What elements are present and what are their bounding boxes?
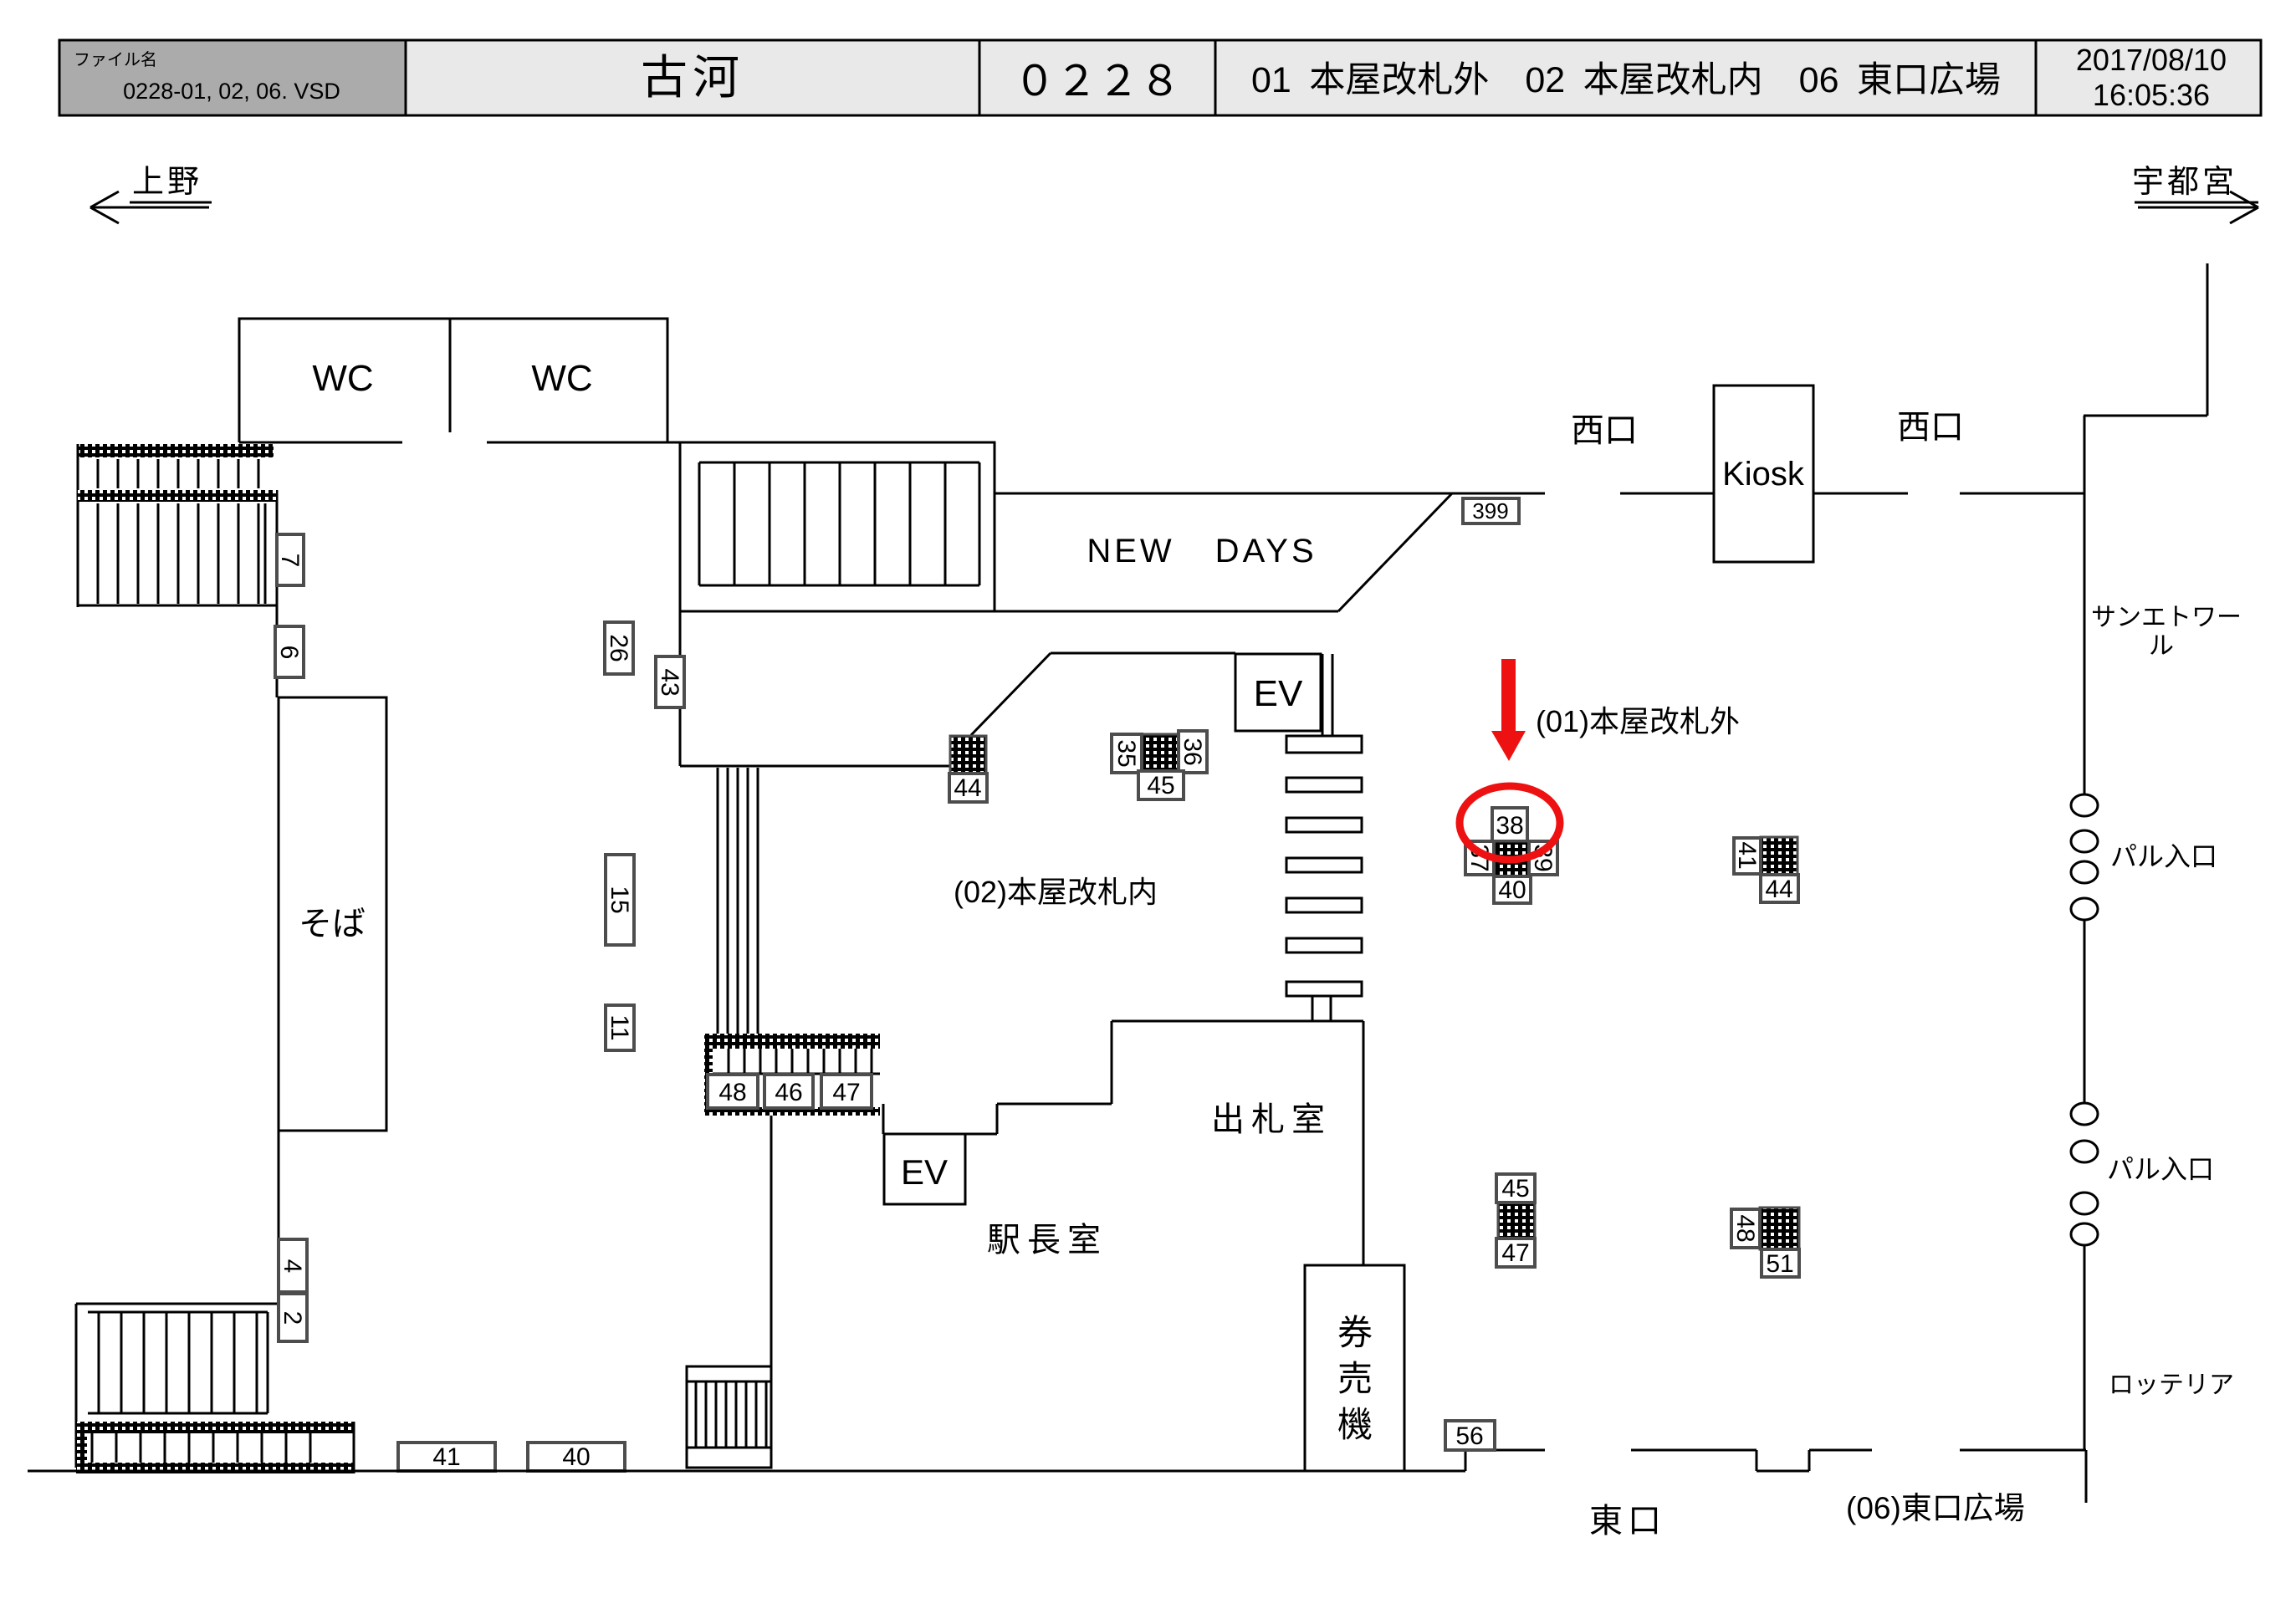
svg-text:48: 48 [718, 1079, 746, 1106]
svg-text:40: 40 [1498, 876, 1526, 904]
svg-text:43: 43 [656, 668, 683, 696]
svg-text:ファイル名: ファイル名 [74, 50, 157, 69]
svg-text:ル: ル [2149, 632, 2174, 660]
svg-text:45: 45 [1147, 772, 1174, 799]
svg-text:機: 機 [1337, 1405, 1373, 1444]
svg-text:そば: そば [299, 906, 366, 942]
svg-text:38: 38 [1496, 812, 1523, 840]
svg-text:45: 45 [1501, 1175, 1529, 1203]
svg-text:上野: 上野 [132, 165, 202, 200]
svg-text:2: 2 [279, 1311, 306, 1325]
svg-text:0228-01, 02, 06. VSD: 0228-01, 02, 06. VSD [123, 79, 340, 104]
svg-text:(01)本屋改札外: (01)本屋改札外 [1536, 704, 1740, 738]
svg-text:EV: EV [1254, 673, 1303, 714]
svg-text:出札室: 出札室 [1211, 1101, 1332, 1138]
svg-text:宇都宮: 宇都宮 [2132, 165, 2237, 200]
svg-text:47: 47 [832, 1079, 860, 1106]
svg-text:35: 35 [1112, 739, 1140, 767]
svg-text:4: 4 [279, 1259, 306, 1274]
svg-text:01 本屋改札外 02 本屋改札内 06 東口広場: 01 本屋改札外 02 本屋改札内 06 東口広場 [1251, 60, 2001, 100]
svg-text:(06)東口広場: (06)東口広場 [1846, 1491, 2025, 1525]
svg-text:399: 399 [1472, 498, 1508, 523]
svg-text:16:05:36: 16:05:36 [2093, 78, 2210, 112]
svg-text:ロッテリア: ロッテリア [2109, 1371, 2234, 1399]
svg-text:西口: 西口 [1571, 412, 1638, 449]
svg-text:15: 15 [606, 886, 633, 913]
svg-text:46: 46 [775, 1079, 802, 1106]
svg-text:駅長室: 駅長室 [987, 1222, 1107, 1259]
svg-text:Kiosk: Kiosk [1722, 456, 1805, 493]
svg-text:０２２８: ０２２８ [1014, 58, 1181, 105]
svg-text:西口: 西口 [1897, 409, 1964, 446]
svg-text:44: 44 [1765, 876, 1792, 903]
svg-text:古河: 古河 [641, 51, 744, 104]
svg-text:WC: WC [312, 358, 373, 399]
svg-text:47: 47 [1501, 1239, 1529, 1267]
svg-text:パル入口: パル入口 [2110, 841, 2217, 871]
svg-text:サンエトワー: サンエトワー [2091, 604, 2242, 631]
svg-text:41: 41 [1733, 841, 1761, 869]
svg-text:NEW DAYS: NEW DAYS [1087, 533, 1317, 569]
svg-text:EV: EV [901, 1152, 948, 1192]
svg-text:2017/08/10: 2017/08/10 [2076, 43, 2227, 77]
svg-text:40: 40 [562, 1443, 590, 1471]
svg-text:56: 56 [1455, 1422, 1483, 1450]
svg-text:券: 券 [1337, 1313, 1373, 1352]
svg-text:6: 6 [275, 646, 303, 660]
svg-text:(02)本屋改札内: (02)本屋改札内 [954, 875, 1158, 909]
svg-text:48: 48 [1731, 1214, 1759, 1242]
svg-text:11: 11 [606, 1014, 633, 1040]
svg-text:26: 26 [605, 634, 632, 661]
svg-text:東口: 東口 [1589, 1503, 1666, 1540]
svg-text:7: 7 [276, 554, 304, 568]
svg-text:36: 36 [1179, 738, 1206, 765]
svg-text:WC: WC [531, 358, 592, 399]
svg-text:売: 売 [1337, 1359, 1373, 1398]
svg-text:51: 51 [1766, 1250, 1793, 1278]
svg-text:44: 44 [954, 774, 981, 802]
svg-text:41: 41 [432, 1443, 460, 1471]
svg-text:パル入口: パル入口 [2107, 1154, 2214, 1184]
